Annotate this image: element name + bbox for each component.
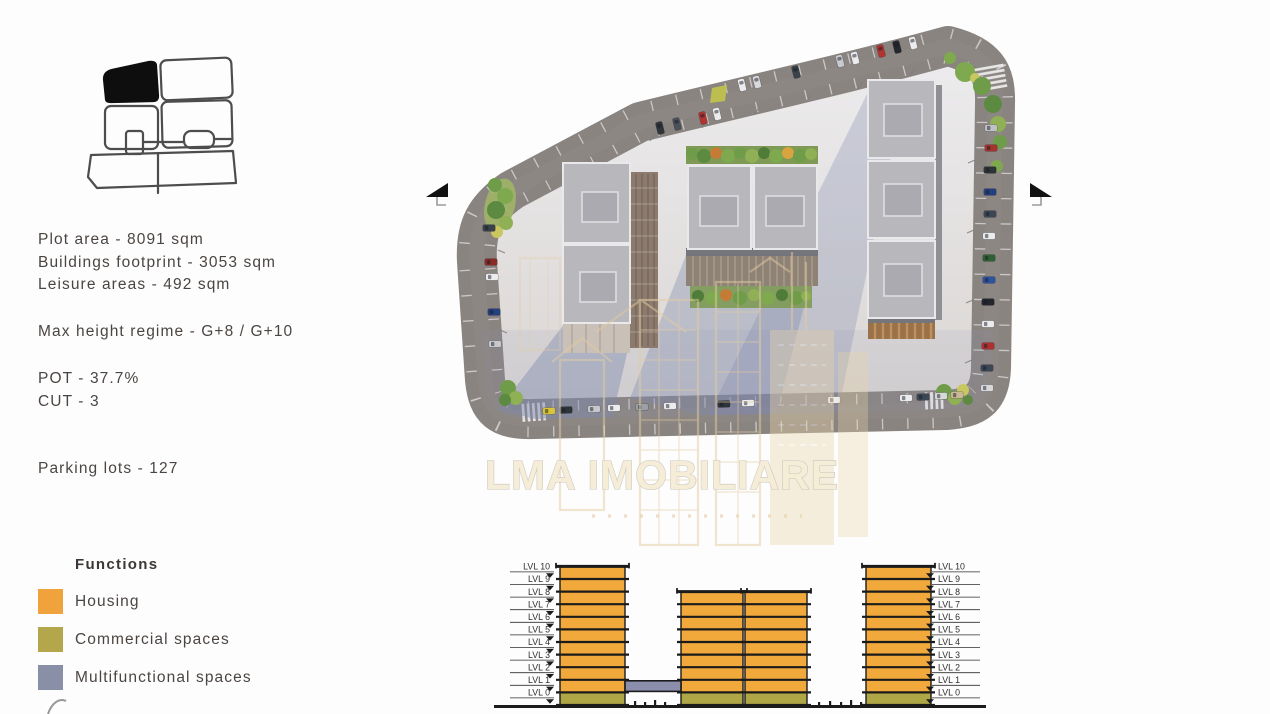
car	[982, 343, 995, 350]
parcel-inner-detail-2	[184, 131, 214, 148]
legend-item-multifunctional: Multifunctional spaces	[38, 665, 252, 690]
housing-color-swatch	[38, 589, 63, 614]
legend-title: Functions	[75, 556, 252, 573]
mid-tower-a	[677, 588, 747, 705]
legend-item-housing: Housing	[38, 589, 252, 614]
middle-building	[686, 146, 818, 308]
section-cut-marker-left	[426, 183, 448, 205]
car	[951, 391, 964, 398]
site-location-plan	[75, 30, 255, 210]
svg-text:LVL 3: LVL 3	[938, 650, 960, 660]
subject-parcel-filled	[104, 62, 158, 102]
svg-text:LVL 1: LVL 1	[938, 675, 960, 685]
car	[483, 225, 496, 232]
svg-text:LVL 10: LVL 10	[523, 562, 550, 572]
parcel-inner-detail-1	[126, 131, 143, 154]
car	[488, 309, 501, 316]
svg-text:LVL 6: LVL 6	[528, 612, 550, 622]
mid-tower-b	[741, 588, 811, 705]
stray-mark	[36, 694, 76, 714]
stat-pot: POT - 37.7%	[38, 368, 293, 391]
aerial-render: LMA IMOBILIARE	[418, 8, 1064, 560]
svg-text:LVL 2: LVL 2	[938, 662, 960, 672]
car	[486, 274, 499, 281]
car	[608, 404, 621, 411]
multifunctional-color-swatch	[38, 665, 63, 690]
legend-item-commercial: Commercial spaces	[38, 627, 252, 652]
presentation-slide: Plot area - 8091 sqm Buildings footprint…	[0, 0, 1270, 714]
svg-text:LVL 3: LVL 3	[528, 650, 550, 660]
svg-text:LVL 10: LVL 10	[938, 562, 965, 572]
svg-text:LVL 0: LVL 0	[938, 688, 960, 698]
watermark-text: LMA IMOBILIARE	[485, 452, 839, 498]
car	[985, 145, 998, 152]
stat-cut: CUT - 3	[38, 391, 293, 414]
svg-text:LVL 8: LVL 8	[528, 587, 550, 597]
car	[588, 405, 601, 412]
car	[636, 403, 649, 410]
stat-parking-lots: Parking lots - 127	[38, 458, 293, 481]
legend-label-housing: Housing	[75, 593, 140, 611]
car	[984, 167, 997, 174]
parcel-top-right	[160, 57, 233, 100]
car	[981, 385, 994, 392]
right-building	[868, 80, 942, 339]
car	[742, 399, 755, 406]
svg-text:LVL 1: LVL 1	[528, 675, 550, 685]
left-building	[563, 163, 658, 353]
section-cut-marker-right	[1030, 183, 1052, 205]
car	[982, 321, 995, 328]
site-statistics: Plot area - 8091 sqm Buildings footprint…	[38, 229, 293, 481]
car	[983, 233, 996, 240]
svg-text:LVL 5: LVL 5	[938, 625, 960, 635]
car	[664, 402, 677, 409]
car	[982, 299, 995, 306]
car	[984, 211, 997, 218]
car	[983, 255, 996, 262]
parcel-inner-links	[143, 139, 231, 142]
functions-legend: Functions Housing Commercial spaces Mult…	[38, 556, 252, 703]
svg-text:LVL 0: LVL 0	[528, 688, 550, 698]
multifunctional-bridge	[625, 681, 681, 692]
stat-max-height: Max height regime - G+8 / G+10	[38, 321, 293, 344]
car	[900, 394, 913, 401]
svg-text:LVL 8: LVL 8	[938, 587, 960, 597]
car	[560, 406, 573, 413]
stat-leisure-areas: Leisure areas - 492 sqm	[38, 274, 293, 297]
legend-label-multifunctional: Multifunctional spaces	[75, 669, 252, 687]
parcel-bottom-strip	[88, 151, 236, 188]
svg-text:LVL 2: LVL 2	[528, 662, 550, 672]
svg-text:LVL 4: LVL 4	[938, 637, 960, 647]
car	[981, 365, 994, 372]
svg-text:LVL 4: LVL 4	[528, 637, 550, 647]
car	[489, 341, 502, 348]
car	[985, 125, 998, 132]
svg-text:LVL 9: LVL 9	[528, 574, 550, 584]
right-tower	[862, 563, 935, 705]
parcel-mid-right	[161, 100, 232, 148]
svg-text:LVL 7: LVL 7	[938, 599, 960, 609]
commercial-color-swatch	[38, 627, 63, 652]
section-diagram: LVL 10LVL 10LVL 9LVL 9LVL 8LVL 8LVL 7LVL…	[488, 552, 992, 714]
stat-buildings-footprint: Buildings footprint - 3053 sqm	[38, 252, 293, 275]
legend-label-commercial: Commercial spaces	[75, 631, 230, 649]
car	[984, 189, 997, 196]
svg-text:LVL 5: LVL 5	[528, 625, 550, 635]
car	[485, 259, 498, 266]
car	[917, 393, 930, 400]
car	[543, 407, 556, 414]
svg-text:LVL 7: LVL 7	[528, 599, 550, 609]
car	[983, 277, 996, 284]
car	[935, 392, 948, 399]
left-tower	[556, 563, 629, 705]
svg-text:LVL 9: LVL 9	[938, 574, 960, 584]
svg-text:LVL 6: LVL 6	[938, 612, 960, 622]
stat-plot-area: Plot area - 8091 sqm	[38, 229, 293, 252]
